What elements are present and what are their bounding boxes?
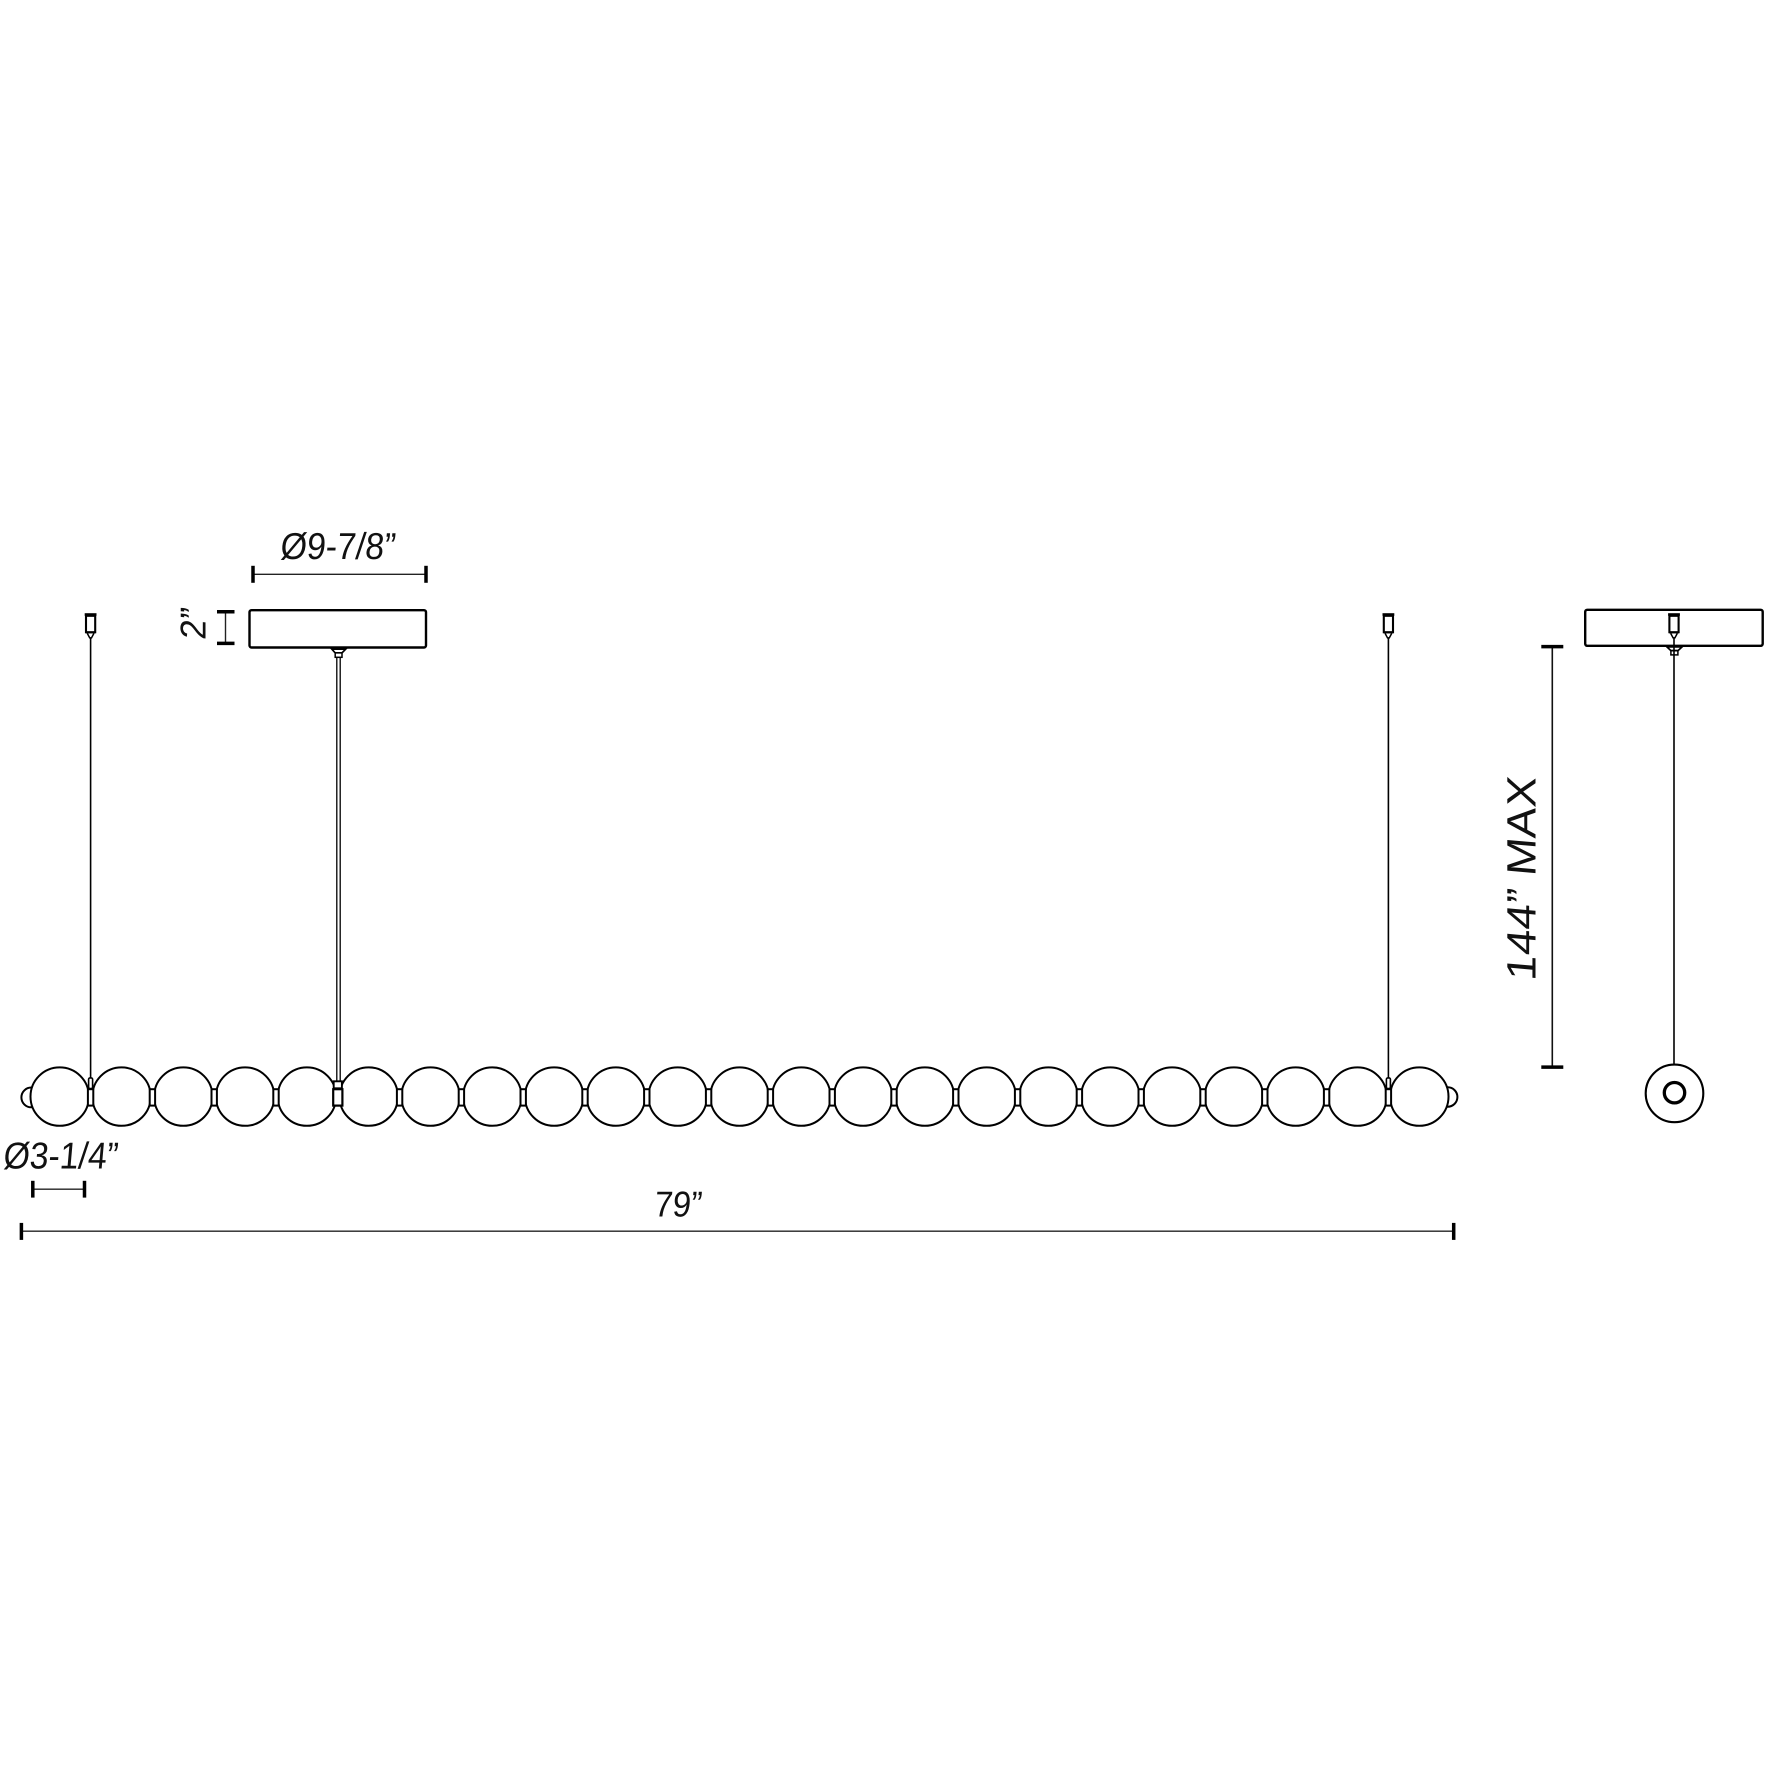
svg-text:Ø3-1/4”: Ø3-1/4”	[2, 1135, 120, 1177]
svg-text:Ø9-7/8”: Ø9-7/8”	[279, 525, 398, 567]
svg-text:144” MAX: 144” MAX	[1499, 774, 1545, 982]
svg-text:2”: 2”	[173, 606, 214, 641]
svg-text:79”: 79”	[653, 1183, 704, 1224]
